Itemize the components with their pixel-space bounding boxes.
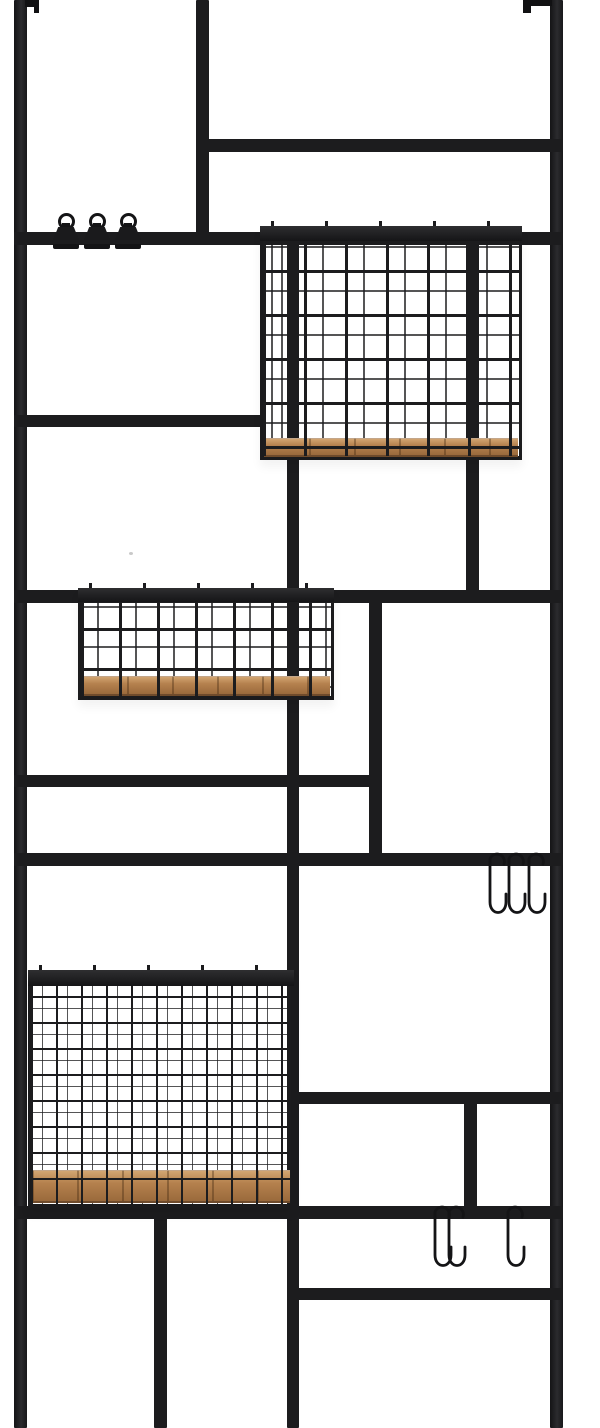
shelf-bar-left-lower	[14, 775, 382, 787]
s-hook	[503, 1198, 529, 1282]
s-hook-shape	[444, 1198, 470, 1282]
binder-clip	[84, 227, 110, 240]
binder-clip-jaw	[84, 244, 110, 249]
binder-clip	[53, 227, 79, 240]
s-hook-shape	[524, 845, 550, 929]
binder-clip-jaw	[115, 244, 141, 249]
basket-front-mesh	[263, 226, 519, 456]
basket-front-mesh	[31, 970, 291, 1204]
basket-rim	[28, 970, 294, 986]
shelf-bar-left-mid	[14, 415, 262, 427]
basket-hanger-tabs	[271, 221, 511, 226]
wall-bracket-left-lip	[34, 0, 39, 13]
basket-rim	[260, 226, 522, 241]
binder-clip-jaw	[53, 244, 79, 249]
product-photo	[0, 0, 600, 1428]
s-hook	[444, 1198, 470, 1282]
divider-lower-right-vertical	[464, 1098, 477, 1214]
shelf-bar-right-lower	[287, 1092, 563, 1104]
basket-rim	[78, 588, 334, 602]
shelf-bar-top-right	[196, 139, 563, 152]
wall-bracket-right-lip	[523, 0, 531, 13]
wire-basket-lower	[28, 970, 294, 1208]
hook-bar-upper	[14, 853, 563, 866]
s-hook-shape	[503, 1198, 529, 1282]
organizer-frame	[0, 0, 600, 1428]
binder-clip	[115, 227, 141, 240]
divider-bottom-left-vertical	[154, 1212, 167, 1428]
s-hook	[524, 845, 550, 929]
basket-hanger-tabs	[39, 965, 283, 970]
divider-top-vertical	[196, 0, 209, 245]
dust-speck	[129, 552, 133, 555]
wire-basket-upper	[260, 226, 522, 460]
wire-basket-middle	[78, 588, 334, 700]
basket-front-mesh	[81, 588, 331, 696]
divider-mid-vertical	[369, 596, 382, 860]
shelf-bar-bottom-right	[287, 1288, 563, 1300]
basket-hanger-tabs	[89, 583, 323, 588]
